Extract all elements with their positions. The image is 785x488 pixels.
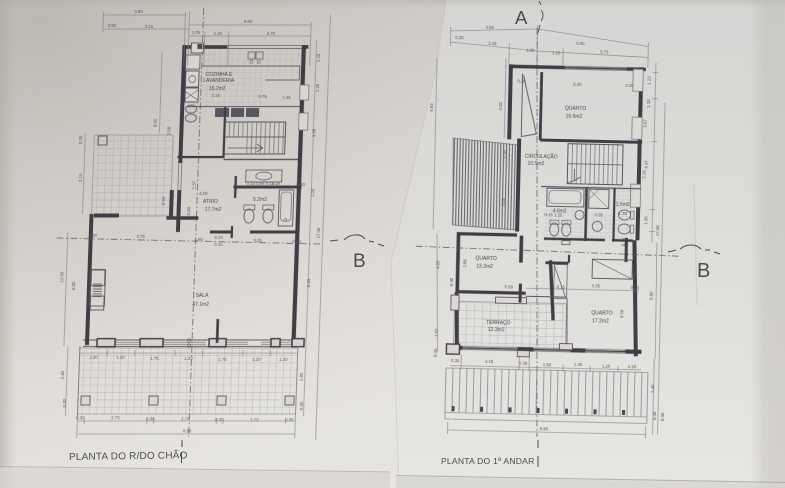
svg-text:6.39: 6.39	[306, 278, 311, 287]
svg-text:0.30: 0.30	[62, 398, 67, 407]
svg-text:1.20: 1.20	[643, 216, 648, 225]
svg-text:ATRIO: ATRIO	[203, 199, 218, 205]
svg-text:0.35: 0.35	[519, 361, 528, 366]
svg-text:16.2m2: 16.2m2	[209, 86, 226, 92]
svg-text:QUARTO: QUARTO	[565, 106, 586, 112]
svg-text:16.5m2: 16.5m2	[566, 114, 583, 120]
svg-text:LAVANDERIA: LAVANDERIA	[203, 78, 235, 84]
svg-text:9.50: 9.50	[183, 428, 192, 433]
svg-text:0.30: 0.30	[285, 417, 294, 422]
svg-text:1.57: 1.57	[191, 180, 196, 189]
svg-text:PLANTA DO 1º ANDAR: PLANTA DO 1º ANDAR	[441, 456, 535, 466]
svg-text:0.30: 0.30	[631, 285, 640, 290]
svg-text:1.80: 1.80	[543, 362, 552, 367]
svg-text:2.40: 2.40	[650, 384, 655, 393]
svg-text:3.76: 3.76	[136, 234, 145, 239]
svg-text:B: B	[697, 260, 710, 282]
svg-text:1.23: 1.23	[316, 53, 321, 62]
svg-text:SALA: SALA	[196, 293, 210, 299]
svg-text:12.3m2: 12.3m2	[488, 327, 505, 333]
svg-text:1.35: 1.35	[618, 211, 627, 216]
svg-text:3.15: 3.15	[145, 24, 154, 29]
svg-text:6.00: 6.00	[649, 291, 654, 300]
svg-text:3.14: 3.14	[78, 173, 83, 182]
svg-text:3.50: 3.50	[485, 25, 494, 30]
svg-text:0.35: 0.35	[594, 212, 603, 217]
svg-text:47.1m2: 47.1m2	[192, 302, 209, 308]
svg-text:TERRAÇO: TERRAÇO	[486, 320, 511, 327]
svg-text:1.02: 1.02	[434, 328, 439, 337]
svg-text:3.56: 3.56	[619, 309, 624, 318]
svg-text:0.24: 0.24	[214, 235, 223, 240]
svg-text:QUARTO: QUARTO	[591, 310, 612, 316]
svg-text:3.75: 3.75	[267, 31, 276, 36]
svg-text:1.20: 1.20	[552, 50, 561, 55]
svg-text:1.20: 1.20	[116, 355, 125, 360]
svg-text:1.90: 1.90	[194, 237, 203, 242]
svg-text:6.00: 6.00	[244, 19, 253, 24]
svg-text:3.35: 3.35	[592, 283, 601, 288]
svg-text:A: A	[515, 7, 528, 28]
svg-text:0.30: 0.30	[76, 415, 85, 420]
svg-text:0.30: 0.30	[299, 401, 304, 410]
svg-text:0.30: 0.30	[215, 417, 224, 422]
svg-text:4.03: 4.03	[429, 103, 434, 112]
svg-text:1.05: 1.05	[192, 30, 201, 35]
svg-text:0.35: 0.35	[433, 348, 438, 357]
svg-text:0.15 1.25: 0.15 1.25	[544, 212, 563, 217]
svg-text:2.73: 2.73	[111, 415, 120, 420]
svg-text:0.50: 0.50	[108, 23, 117, 28]
svg-text:0.30: 0.30	[449, 277, 454, 286]
svg-text:5.50: 5.50	[505, 284, 514, 289]
svg-text:9.50: 9.50	[540, 426, 549, 431]
svg-text:1.05: 1.05	[526, 48, 535, 53]
svg-text:3.25: 3.25	[253, 238, 262, 243]
svg-text:1.20: 1.20	[310, 188, 315, 197]
svg-text:2.86: 2.86	[462, 259, 467, 268]
svg-text:17.2m2: 17.2m2	[592, 318, 609, 324]
svg-text:1.20: 1.20	[252, 357, 261, 362]
svg-text:0.15: 0.15	[557, 284, 566, 289]
svg-text:0.30: 0.30	[146, 416, 155, 421]
svg-text:0.30: 0.30	[89, 233, 98, 238]
svg-text:12.50: 12.50	[59, 271, 64, 282]
svg-text:3.15: 3.15	[485, 359, 494, 364]
svg-text:0.15 0.84 0.15: 0.15 0.84 0.15	[247, 181, 275, 186]
svg-text:1.20: 1.20	[315, 83, 320, 92]
svg-text:5.40: 5.40	[573, 82, 582, 87]
svg-text:0.15: 0.15	[621, 237, 626, 246]
svg-text:1.20: 1.20	[279, 357, 288, 362]
svg-text:2.40: 2.40	[60, 370, 65, 379]
svg-text:17.00: 17.00	[655, 225, 660, 236]
svg-text:8.00: 8.00	[153, 118, 158, 127]
svg-text:1.20: 1.20	[214, 31, 223, 36]
svg-text:0.30: 0.30	[625, 83, 634, 88]
svg-text:1.20: 1.20	[628, 364, 637, 369]
svg-text:B: B	[353, 251, 366, 272]
svg-text:3.75: 3.75	[600, 49, 609, 54]
svg-text:1.20: 1.20	[602, 363, 611, 368]
svg-text:0.30: 0.30	[296, 182, 305, 187]
svg-text:1.20: 1.20	[646, 99, 651, 108]
svg-text:2.73: 2.73	[181, 416, 190, 421]
svg-text:3.98: 3.98	[311, 128, 316, 137]
svg-text:0.86: 0.86	[186, 206, 191, 215]
svg-text:0.30: 0.30	[292, 239, 301, 244]
svg-text:1.20: 1.20	[89, 355, 98, 360]
svg-text:3.18: 3.18	[211, 93, 220, 98]
svg-text:2.40: 2.40	[299, 372, 304, 381]
svg-text:1.75: 1.75	[218, 357, 227, 362]
svg-text:0.35: 0.35	[451, 358, 460, 363]
svg-text:1.20: 1.20	[184, 356, 193, 361]
svg-text:6.00: 6.00	[71, 281, 76, 290]
svg-text:4.37: 4.37	[644, 160, 649, 169]
svg-text:1.5m2: 1.5m2	[616, 202, 630, 208]
svg-text:6.00: 6.00	[576, 41, 585, 46]
svg-text:0.15: 0.15	[214, 242, 223, 247]
svg-text:5.2m2: 5.2m2	[253, 197, 267, 203]
svg-text:0.75: 0.75	[258, 94, 267, 99]
svg-text:3.07: 3.07	[642, 119, 647, 128]
svg-text:3.80: 3.80	[134, 9, 143, 14]
svg-text:13.2m2: 13.2m2	[476, 264, 493, 270]
svg-text:0.30: 0.30	[78, 135, 83, 144]
svg-text:3.15: 3.15	[488, 41, 497, 46]
svg-text:0.30: 0.30	[652, 411, 657, 420]
svg-text:1.75: 1.75	[150, 356, 159, 361]
svg-text:1.45: 1.45	[574, 362, 583, 367]
svg-text:2.16: 2.16	[272, 181, 281, 186]
svg-text:0.30: 0.30	[455, 35, 464, 40]
svg-text:0.99: 0.99	[161, 196, 166, 205]
svg-text:10.5m2: 10.5m2	[528, 161, 545, 167]
svg-text:1.45: 1.45	[282, 95, 291, 100]
svg-text:17.00: 17.00	[316, 227, 321, 238]
svg-text:0.30: 0.30	[517, 78, 526, 83]
svg-text:2.20: 2.20	[641, 170, 646, 179]
svg-text:3.08: 3.08	[501, 197, 506, 206]
svg-text:2.73: 2.73	[250, 417, 259, 422]
svg-text:2.00: 2.00	[199, 191, 208, 196]
svg-text:QUARTO: QUARTO	[475, 256, 496, 262]
svg-text:1.20: 1.20	[503, 149, 508, 158]
svg-text:CIRCULAÇÃO: CIRCULAÇÃO	[525, 153, 558, 161]
svg-text:4.02: 4.02	[498, 101, 503, 110]
svg-text:0.30: 0.30	[660, 412, 665, 421]
svg-text:3.58: 3.58	[166, 126, 171, 135]
svg-text:4.03: 4.03	[435, 260, 440, 269]
svg-text:17.7m2: 17.7m2	[205, 207, 222, 213]
svg-text:1.23: 1.23	[646, 76, 651, 85]
